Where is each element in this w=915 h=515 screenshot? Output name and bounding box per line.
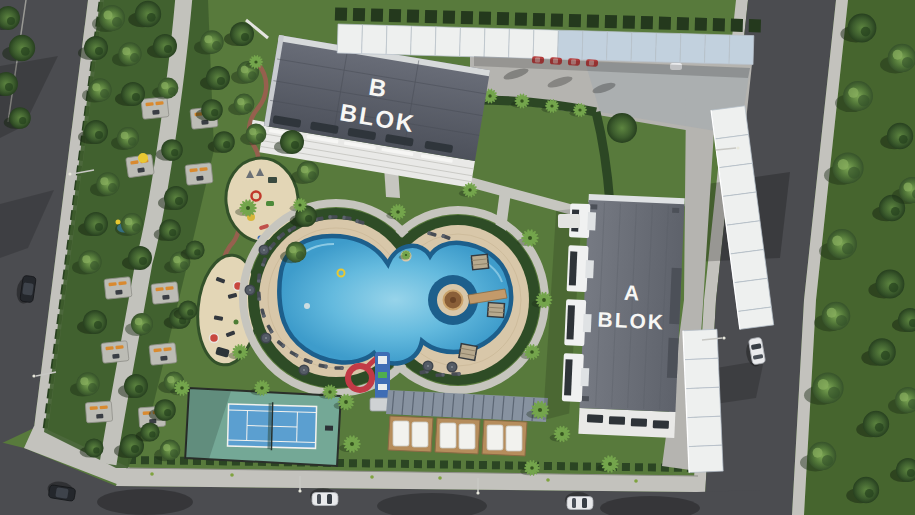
court-bench xyxy=(325,426,333,431)
picnic-table xyxy=(268,177,277,183)
canopy-panels-white xyxy=(337,24,558,59)
slide-tower-stripe xyxy=(378,384,387,390)
patio xyxy=(101,341,129,364)
patio xyxy=(149,343,177,366)
canopy-panels-shaded xyxy=(558,30,754,64)
trampoline xyxy=(210,334,219,343)
patio xyxy=(104,277,132,300)
patio xyxy=(85,401,112,423)
canopy-column-lower xyxy=(683,329,723,472)
aerial-view: B BLOK A BLOK xyxy=(0,0,915,515)
play-item xyxy=(266,201,274,206)
patio xyxy=(141,97,169,120)
cabana-decks xyxy=(388,416,527,456)
tree-shadow-on-road xyxy=(97,489,193,515)
bar-roof-center xyxy=(450,297,456,303)
hedge-tree xyxy=(607,113,637,143)
site-plan-render: B BLOK A BLOK xyxy=(0,0,915,515)
patio xyxy=(185,163,213,186)
patio xyxy=(151,282,179,305)
yellow-umbrella xyxy=(138,153,148,163)
a-blok-label-line2: BLOK xyxy=(597,308,665,334)
pool-float xyxy=(304,303,310,309)
tennis-court xyxy=(185,388,341,466)
shrub xyxy=(234,320,239,325)
a-blok-building: A BLOK xyxy=(542,193,684,439)
a-blok-label-line1: A xyxy=(624,281,642,305)
cabana-pergolas xyxy=(386,390,548,456)
slide-tower-stripe xyxy=(378,372,387,378)
a-blok-entry-pad xyxy=(558,214,580,228)
slide-tower-window xyxy=(378,356,387,364)
